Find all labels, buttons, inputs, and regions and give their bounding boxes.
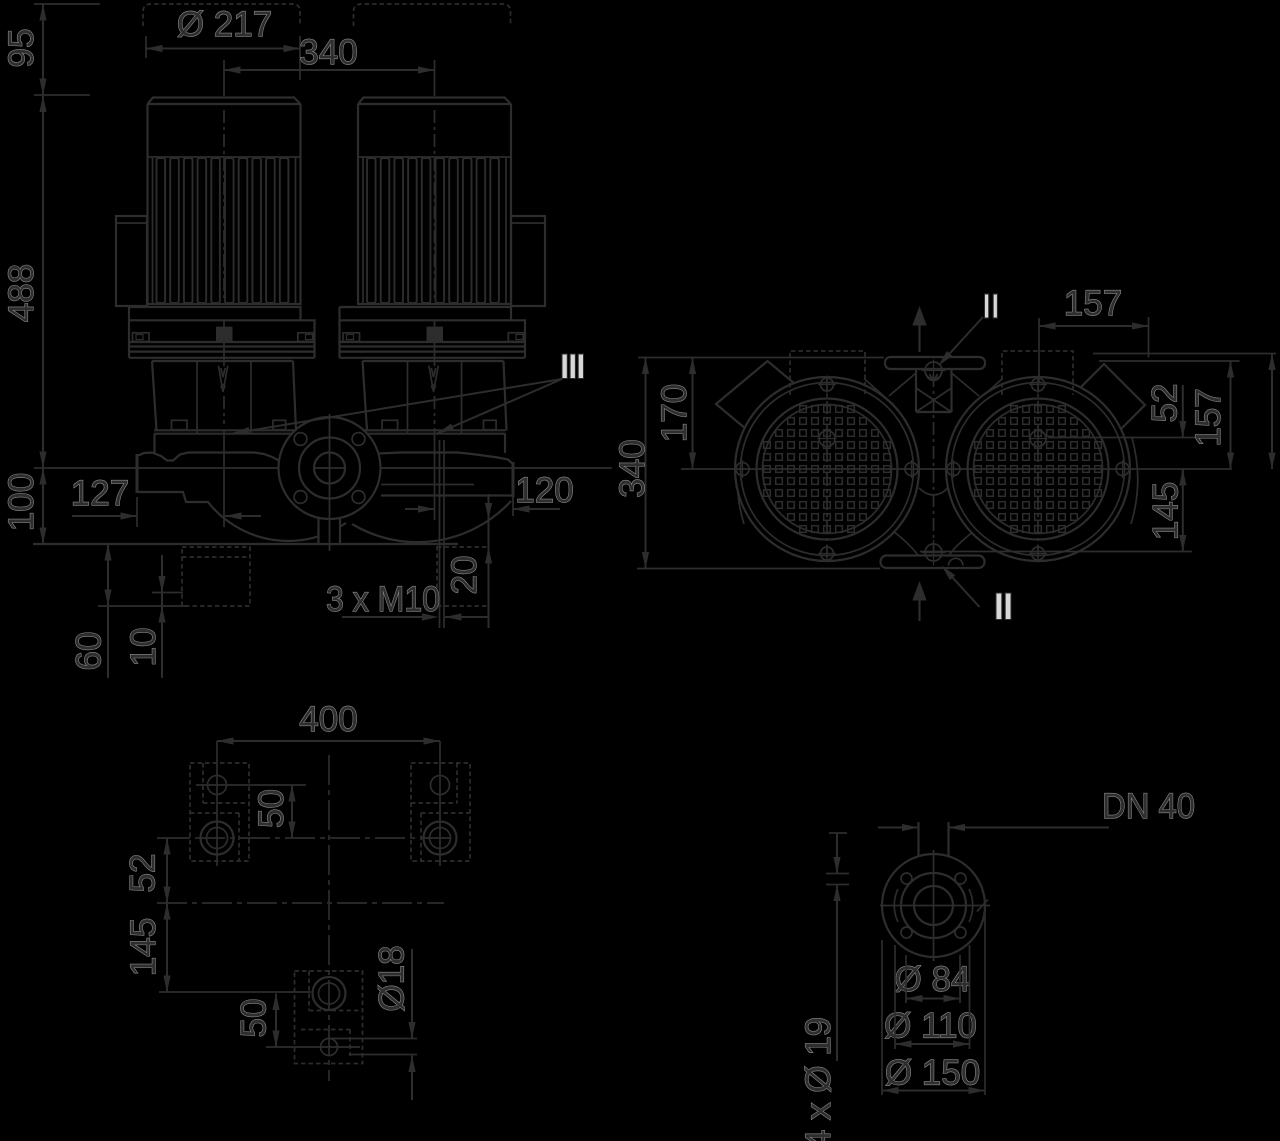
svg-text:52: 52 [1146, 384, 1185, 423]
svg-text:157: 157 [1064, 284, 1122, 323]
svg-text:120: 120 [515, 471, 573, 510]
svg-text:60: 60 [70, 632, 109, 671]
svg-text:Ø 217: Ø 217 [177, 5, 272, 44]
svg-text:50: 50 [252, 789, 291, 828]
svg-text:20: 20 [445, 556, 484, 595]
svg-text:10: 10 [124, 628, 163, 667]
svg-text:340: 340 [299, 33, 357, 72]
svg-text:157: 157 [1189, 388, 1228, 446]
svg-text:Ø 110: Ø 110 [884, 1007, 977, 1046]
svg-text:Ø 150: Ø 150 [885, 1054, 980, 1093]
svg-text:50: 50 [235, 999, 274, 1038]
svg-text:488: 488 [2, 264, 41, 322]
svg-text:145: 145 [124, 918, 163, 976]
svg-text:95: 95 [2, 29, 41, 68]
svg-text:340: 340 [613, 439, 652, 497]
svg-text:127: 127 [71, 474, 129, 513]
svg-text:145: 145 [1147, 482, 1186, 540]
svg-text:Ø18: Ø18 [373, 945, 412, 1011]
svg-text:52: 52 [124, 854, 163, 893]
svg-text:400: 400 [299, 700, 357, 739]
svg-text:DN 40: DN 40 [1102, 787, 1195, 826]
svg-text:100: 100 [2, 473, 41, 531]
svg-text:4 x Ø 19: 4 x Ø 19 [799, 1017, 838, 1141]
svg-text:3 x M10: 3 x M10 [326, 580, 440, 619]
svg-text:170: 170 [655, 384, 694, 442]
